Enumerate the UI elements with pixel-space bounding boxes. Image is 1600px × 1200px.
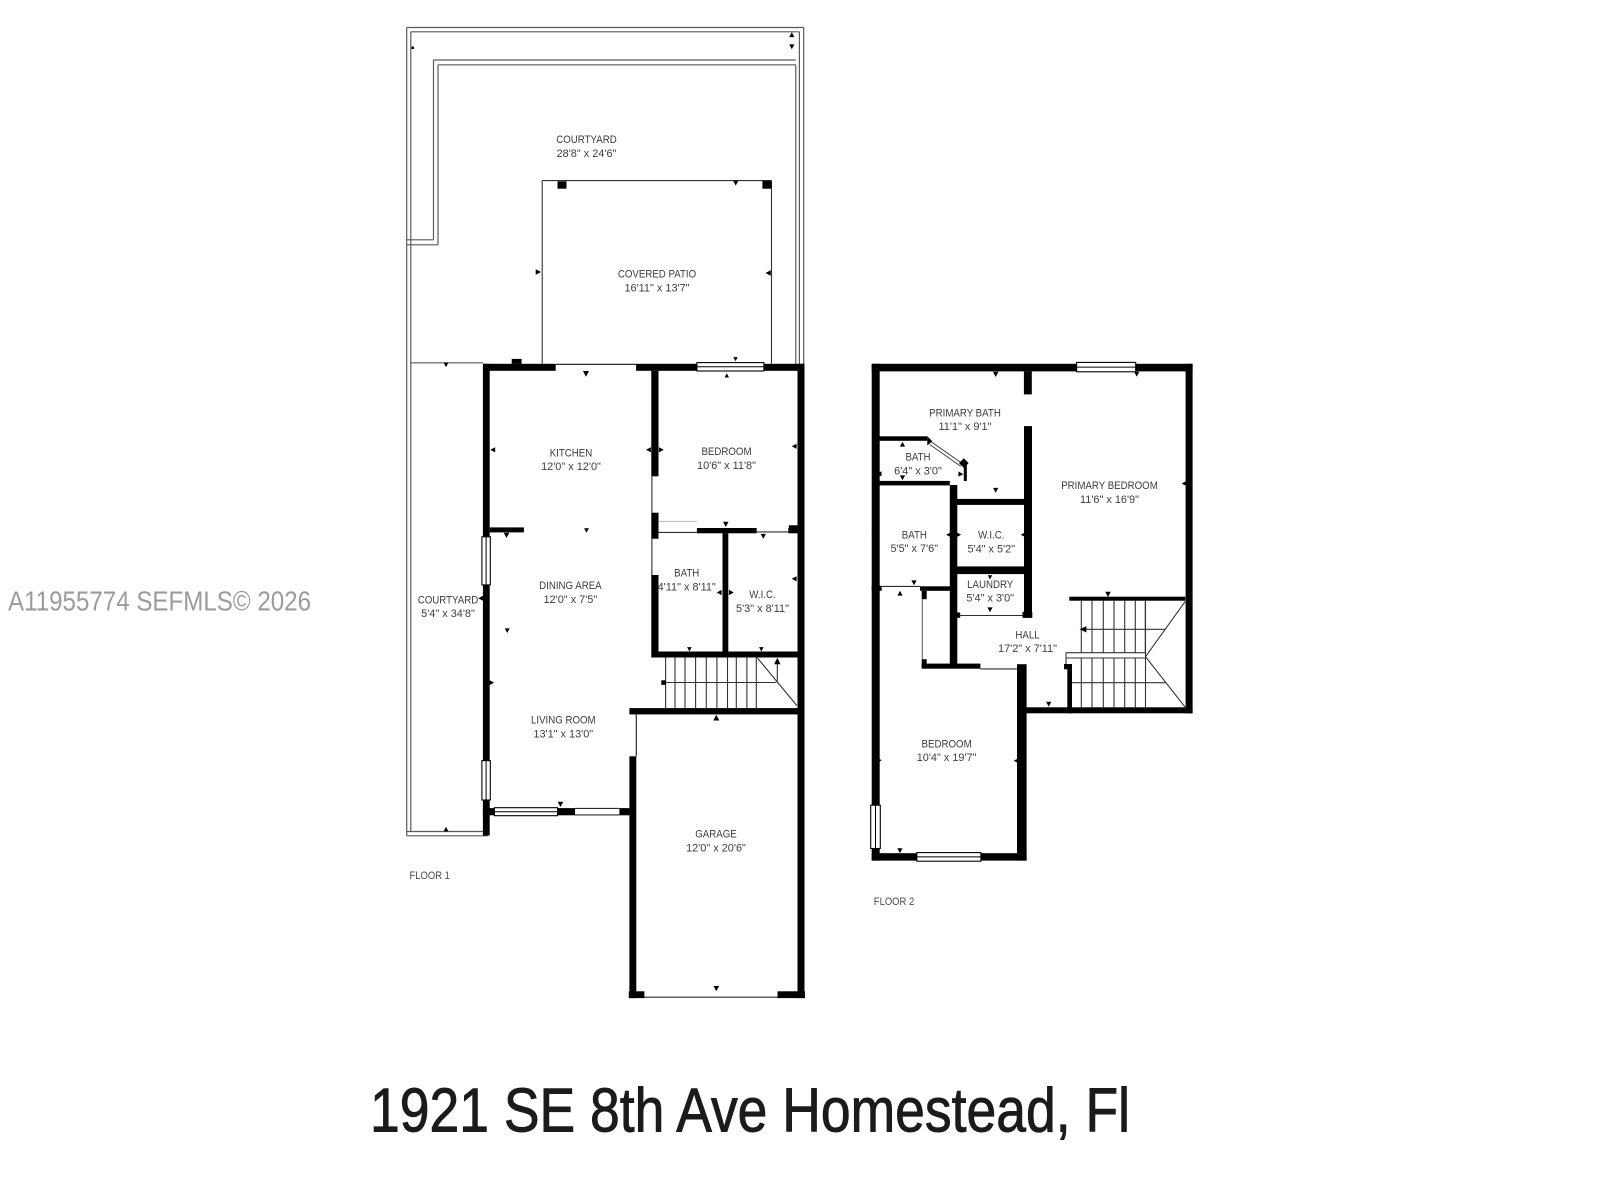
svg-text:5'3" x 8'11": 5'3" x 8'11" <box>736 603 789 615</box>
svg-text:5'5" x 7'6": 5'5" x 7'6" <box>890 543 938 555</box>
svg-text:LAUNDRY: LAUNDRY <box>967 579 1014 591</box>
svg-text:PRIMARY BATH: PRIMARY BATH <box>929 407 1001 419</box>
svg-text:COURTYARD: COURTYARD <box>418 594 479 606</box>
svg-text:LIVING ROOM: LIVING ROOM <box>531 715 596 727</box>
svg-text:W.I.C.: W.I.C. <box>978 530 1004 542</box>
svg-text:COURTYARD: COURTYARD <box>556 134 617 146</box>
svg-text:PRIMARY BEDROOM: PRIMARY BEDROOM <box>1061 480 1158 492</box>
svg-text:BATH: BATH <box>674 568 699 580</box>
svg-text:13'1" x 13'0": 13'1" x 13'0" <box>533 728 593 740</box>
svg-text:28'8" x 24'6": 28'8" x 24'6" <box>557 148 617 160</box>
svg-text:KITCHEN: KITCHEN <box>550 447 593 459</box>
svg-text:10'6" x 11'8": 10'6" x 11'8" <box>697 460 756 472</box>
svg-text:BATH: BATH <box>905 452 930 464</box>
svg-text:DINING AREA: DINING AREA <box>539 580 602 592</box>
svg-text:BATH: BATH <box>902 529 927 541</box>
svg-text:1921 SE 8th Ave Homestead, Fl: 1921 SE 8th Ave Homestead, Fl <box>370 1076 1130 1146</box>
svg-text:12'0" x 20'6": 12'0" x 20'6" <box>686 842 746 854</box>
svg-text:5'4" x 34'8": 5'4" x 34'8" <box>421 608 475 620</box>
svg-text:COVERED PATIO: COVERED PATIO <box>618 269 696 281</box>
svg-text:FLOOR 1: FLOOR 1 <box>410 870 450 882</box>
svg-text:6'4" x 3'0": 6'4" x 3'0" <box>894 465 942 477</box>
svg-text:HALL: HALL <box>1015 629 1039 641</box>
svg-text:11'1" x 9'1": 11'1" x 9'1" <box>939 421 992 433</box>
svg-text:4'11" x 8'11": 4'11" x 8'11" <box>658 581 716 593</box>
svg-text:5'4" x 5'2": 5'4" x 5'2" <box>967 544 1015 556</box>
svg-text:11'6" x 16'9": 11'6" x 16'9" <box>1080 494 1139 506</box>
svg-text:10'4" x 19'7": 10'4" x 19'7" <box>917 752 977 764</box>
svg-text:12'0" x 7'5": 12'0" x 7'5" <box>544 594 598 606</box>
svg-text:FLOOR 2: FLOOR 2 <box>874 896 914 908</box>
svg-text:GARAGE: GARAGE <box>695 829 737 841</box>
svg-text:5'4" x 3'0": 5'4" x 3'0" <box>966 593 1014 605</box>
svg-text:W.I.C.: W.I.C. <box>749 589 775 601</box>
svg-text:BEDROOM: BEDROOM <box>922 738 972 750</box>
svg-text:16'11" x 13'7": 16'11" x 13'7" <box>624 282 689 294</box>
svg-text:A11955774 SEFMLS© 2026: A11955774 SEFMLS© 2026 <box>8 585 311 616</box>
svg-text:17'2" x 7'11": 17'2" x 7'11" <box>998 643 1057 655</box>
svg-text:BEDROOM: BEDROOM <box>701 446 751 458</box>
svg-text:12'0" x 12'0": 12'0" x 12'0" <box>541 461 601 473</box>
